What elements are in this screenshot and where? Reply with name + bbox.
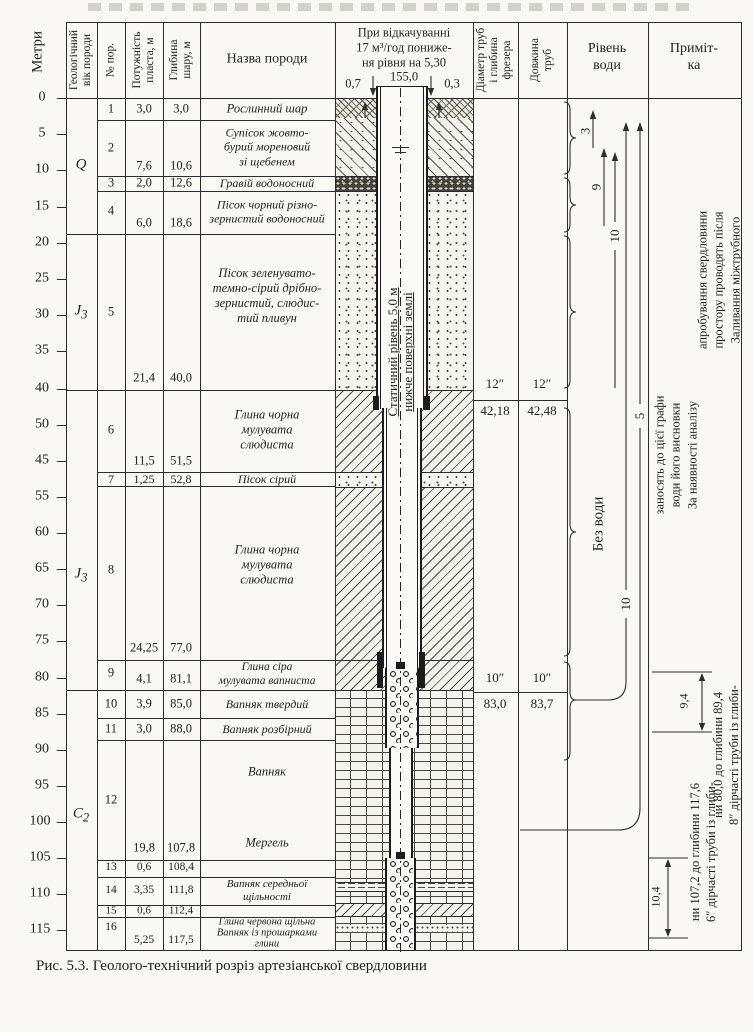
row-no: 15	[106, 904, 117, 917]
arrow-10a-head	[612, 152, 618, 161]
note-grouting: Заливання міжтрубного простору проводять…	[695, 100, 744, 460]
diam-10-frez: 10″	[486, 670, 504, 686]
depth-tick-label: 70	[35, 597, 49, 614]
brace-5	[564, 662, 576, 760]
tick	[57, 170, 66, 171]
level-10-upper: 10	[608, 222, 622, 250]
header-note: Приміт- ка	[670, 41, 718, 75]
brace-1	[564, 102, 576, 174]
header-pumping: При відкачуванні 17 м³/год пониже- ня рі…	[356, 26, 451, 71]
row-no: 1	[108, 102, 114, 117]
row-name: Рослинний шар	[227, 102, 308, 117]
len-4218: 42,18	[480, 403, 509, 419]
age-J3-upper: J3	[75, 302, 88, 323]
tick	[57, 533, 66, 534]
figure-caption: Рис. 5.3. Геолого-технічний розріз артез…	[36, 958, 427, 975]
row-name: Вапняк розбірний	[222, 722, 311, 736]
stickup-right-value: 0,3	[444, 77, 460, 92]
depth-tick-label: 60	[35, 525, 49, 542]
age-C2: C2	[73, 805, 89, 826]
row-no: 11	[105, 722, 117, 737]
row-name: Глина чорна мулувата слюдиста	[235, 543, 300, 588]
header-pipe-diam: Діаметр труб і глибина фрезера	[475, 25, 515, 95]
span104-head-down	[665, 929, 671, 937]
row-depth: 12,6	[170, 176, 192, 191]
row-thick: 5,25	[134, 934, 154, 948]
tick	[57, 858, 66, 859]
row-name: Глина червона щільна Вапняк із прошаркам…	[217, 916, 317, 949]
row-depth: 108,4	[168, 861, 194, 875]
depth-tick-label: 65	[35, 561, 49, 578]
span-104-label: 10,4	[650, 879, 663, 915]
span94-head-up	[699, 673, 705, 681]
depth-tick-label: 25	[35, 271, 49, 288]
tick	[57, 750, 66, 751]
tick	[57, 822, 66, 823]
row-no: 6	[108, 423, 114, 438]
header-no: № пор.	[104, 25, 117, 95]
row-thick: 6,0	[136, 216, 152, 231]
row-no: 3	[108, 176, 114, 191]
header-pipe-len: Довжина труб	[529, 25, 555, 95]
arrow-5-head	[637, 122, 643, 131]
row-depth: 40,0	[170, 371, 192, 386]
len-837: 83,7	[531, 696, 554, 712]
depth-tick-label: 100	[30, 814, 51, 831]
row-no: 9	[108, 666, 114, 681]
tick	[57, 207, 66, 208]
depth-tick-label: 85	[35, 706, 49, 723]
tick	[57, 497, 66, 498]
row-thick: 4,1	[136, 672, 152, 687]
row-name: Глина чорна мулувата слюдиста	[235, 408, 300, 453]
soil-arrow-left-head	[362, 102, 368, 110]
level-3: 3	[579, 121, 594, 141]
tick	[57, 134, 66, 135]
row-no: 16	[105, 921, 117, 935]
row-depth: 3,0	[173, 102, 189, 117]
row-name: Глина сіра мулувата вапниста	[218, 661, 315, 689]
tick	[57, 894, 66, 895]
arrow-9-head	[601, 148, 607, 157]
row-depth: 51,5	[170, 454, 192, 469]
no-water-label: Без води	[590, 479, 607, 569]
row-depth: 117,5	[168, 934, 193, 948]
depth-tick-label: 110	[30, 886, 50, 903]
meters-axis-label: Метри	[29, 16, 46, 88]
header-thickness: Потужність пласта, м	[131, 25, 157, 95]
tick	[57, 714, 66, 715]
row-name: Пісок чорний різно- зернистий водоносний	[209, 198, 324, 227]
row-thick: 3,0	[136, 102, 152, 117]
row-thick: 21,4	[133, 371, 155, 386]
row-no: 5	[108, 305, 114, 320]
row-no: 7	[108, 472, 114, 486]
depth-tick-label: 5	[39, 126, 46, 143]
tick	[57, 279, 66, 280]
note-6in-perforated: 6″ дірчасті труби із глиби- ни 107,2 до …	[687, 748, 720, 956]
age-J3-lower: J3	[75, 565, 88, 586]
level-9: 9	[590, 177, 605, 197]
row-name-2: Мергель	[245, 836, 288, 851]
row-thick: 24,25	[130, 641, 158, 656]
depth-tick-label: 75	[35, 633, 49, 650]
depth-tick-label: 30	[35, 307, 49, 324]
row-depth: 107,8	[167, 841, 195, 856]
tick	[57, 786, 66, 787]
depth-tick-label: 35	[35, 343, 49, 360]
stickup-center-value: 155,0	[390, 70, 418, 85]
tick	[57, 678, 66, 679]
level-10-lower: 10	[619, 590, 633, 618]
brace-4	[564, 408, 576, 656]
row-thick: 0,6	[137, 861, 151, 875]
borehole-log-figure: Статичний рівень 5,0 м нижче поверхні зе…	[0, 0, 753, 1032]
row-thick: 3,9	[136, 697, 152, 712]
diam-12-pipe: 12″	[533, 376, 551, 392]
span-94-label: 9,4	[678, 685, 691, 717]
depth-tick-label: 45	[35, 453, 49, 470]
stickup-arrow-left-head	[370, 88, 376, 96]
tick	[57, 351, 66, 352]
row-no: 8	[108, 563, 114, 578]
arrow-3-head	[590, 110, 596, 119]
tick	[57, 605, 66, 606]
row-no: 10	[105, 697, 118, 712]
len-4248: 42,48	[527, 403, 556, 419]
depth-tick-label: 10	[35, 162, 49, 179]
tick	[57, 425, 66, 426]
tick	[57, 243, 66, 244]
row-thick: 7,6	[136, 159, 152, 174]
tick	[57, 389, 66, 390]
row-no: 14	[105, 884, 117, 898]
header-water-level: Рівень води	[588, 41, 626, 75]
row-depth: 52,8	[171, 472, 192, 486]
soil-arrow-right-head	[436, 102, 442, 110]
depth-tick-label: 50	[35, 417, 49, 434]
row-name: Пісок сірий	[238, 472, 296, 486]
row-depth: 81,1	[170, 672, 192, 687]
tick	[57, 315, 66, 316]
note-analysis: За наявності аналізу води його висновки …	[652, 300, 701, 610]
level-5: 5	[633, 404, 647, 428]
span94-head-down	[699, 723, 705, 731]
depth-tick-label: 115	[30, 922, 50, 939]
depth-tick-label: 105	[30, 850, 51, 867]
row-thick: 19,8	[133, 841, 155, 856]
row-name: Вапняк твердий	[226, 697, 309, 711]
row-depth: 85,0	[170, 697, 192, 712]
row-no: 12	[105, 793, 118, 808]
depth-tick-label: 90	[35, 742, 49, 759]
row-name: Пісок зеленувато- темно-сірий дрібно- зе…	[213, 266, 322, 326]
row-thick: 0,6	[137, 904, 151, 917]
depth-tick-label: 80	[35, 670, 49, 687]
row-depth: 112,4	[169, 904, 193, 917]
span104-head-up	[665, 859, 671, 867]
diam-12-frez: 12″	[486, 376, 504, 392]
row-thick: 3,0	[136, 722, 152, 737]
row-name: Супісок жовто- бурий мореновий зі щебене…	[224, 125, 310, 168]
depth-tick-label: 15	[35, 199, 49, 216]
tick	[57, 461, 66, 462]
brace-2	[564, 178, 576, 232]
row-depth: 111,8	[168, 884, 193, 898]
stickup-arrow-right-head	[428, 88, 434, 96]
row-name: Вапняк середньої щільності	[227, 878, 308, 904]
row-thick: 2,0	[136, 176, 152, 191]
depth-tick-label: 55	[35, 489, 49, 506]
row-depth: 18,6	[170, 216, 192, 231]
row-thick: 11,5	[133, 454, 154, 469]
depth-tick-label: 20	[35, 235, 49, 252]
depth-tick-label: 0	[39, 90, 46, 107]
row-no: 13	[105, 861, 117, 875]
header-depth: Глибина шару, м	[168, 25, 194, 95]
row-no: 2	[108, 141, 114, 156]
header-geo-age: Геологічний вік породи	[68, 25, 94, 95]
tick	[57, 98, 66, 99]
len-830: 83,0	[484, 696, 507, 712]
depth-tick-label: 40	[35, 381, 49, 398]
row-name: Гравій водоносний	[220, 176, 314, 190]
diam-10-pipe: 10″	[533, 670, 551, 686]
row-name: Вапняк	[248, 765, 286, 780]
stickup-left-value: 0,7	[345, 77, 361, 92]
row-depth: 77,0	[170, 641, 192, 656]
row-depth: 10,6	[170, 159, 192, 174]
arrow-10b-head	[623, 122, 629, 131]
row-thick: 1,25	[134, 472, 155, 486]
tick	[57, 569, 66, 570]
header-rock-name: Назва породи	[227, 52, 308, 69]
row-thick: 3,35	[134, 884, 154, 898]
tick	[57, 930, 66, 931]
depth-tick-label: 95	[35, 778, 49, 795]
row-no: 4	[108, 204, 114, 219]
tick	[57, 641, 66, 642]
row-depth: 88,0	[170, 722, 192, 737]
brace-3	[564, 236, 576, 388]
age-Q: Q	[76, 156, 87, 177]
